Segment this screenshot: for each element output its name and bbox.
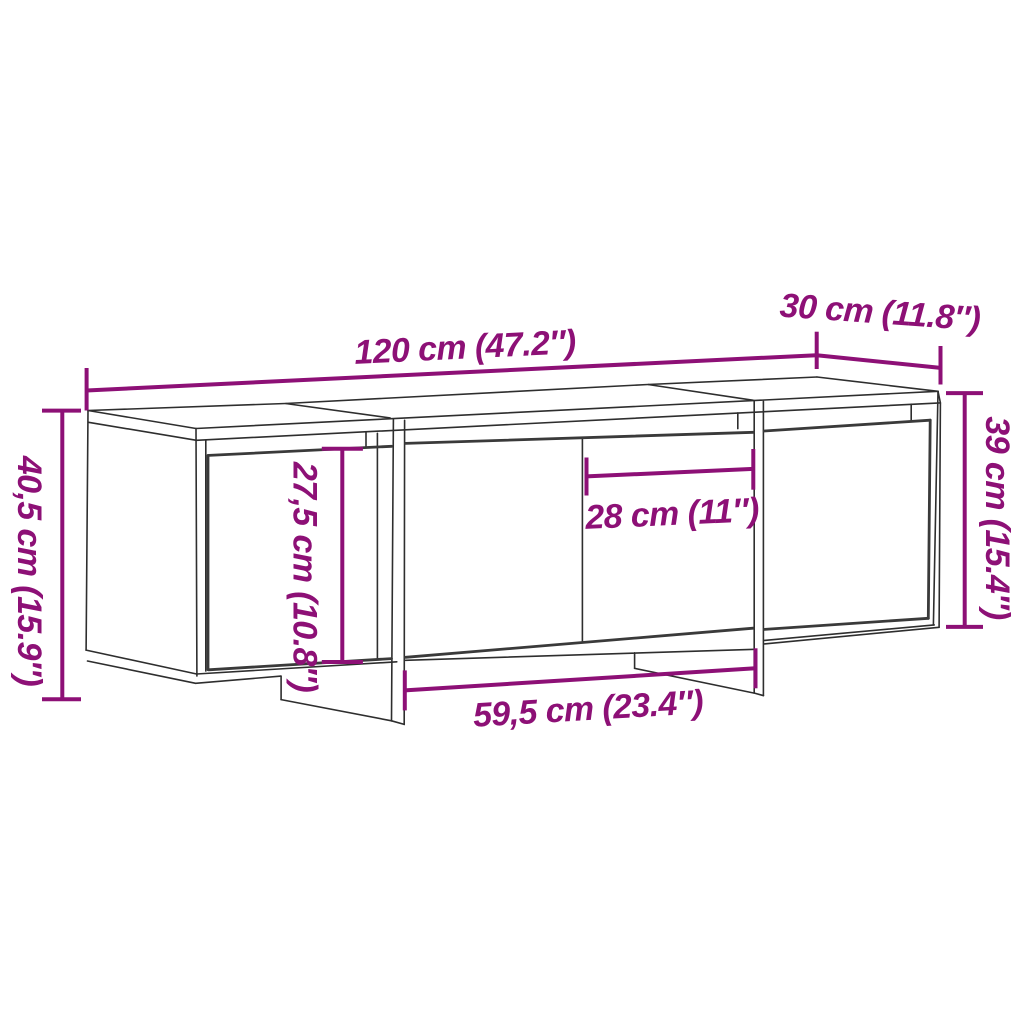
svg-text:40,5 cm (15.9″): 40,5 cm (15.9″) — [10, 455, 48, 687]
svg-text:27,5 cm (10.8″): 27,5 cm (10.8″) — [286, 461, 324, 693]
svg-text:39 cm (15.4″): 39 cm (15.4″) — [978, 416, 1016, 619]
svg-text:28 cm (11″): 28 cm (11″) — [583, 491, 759, 537]
